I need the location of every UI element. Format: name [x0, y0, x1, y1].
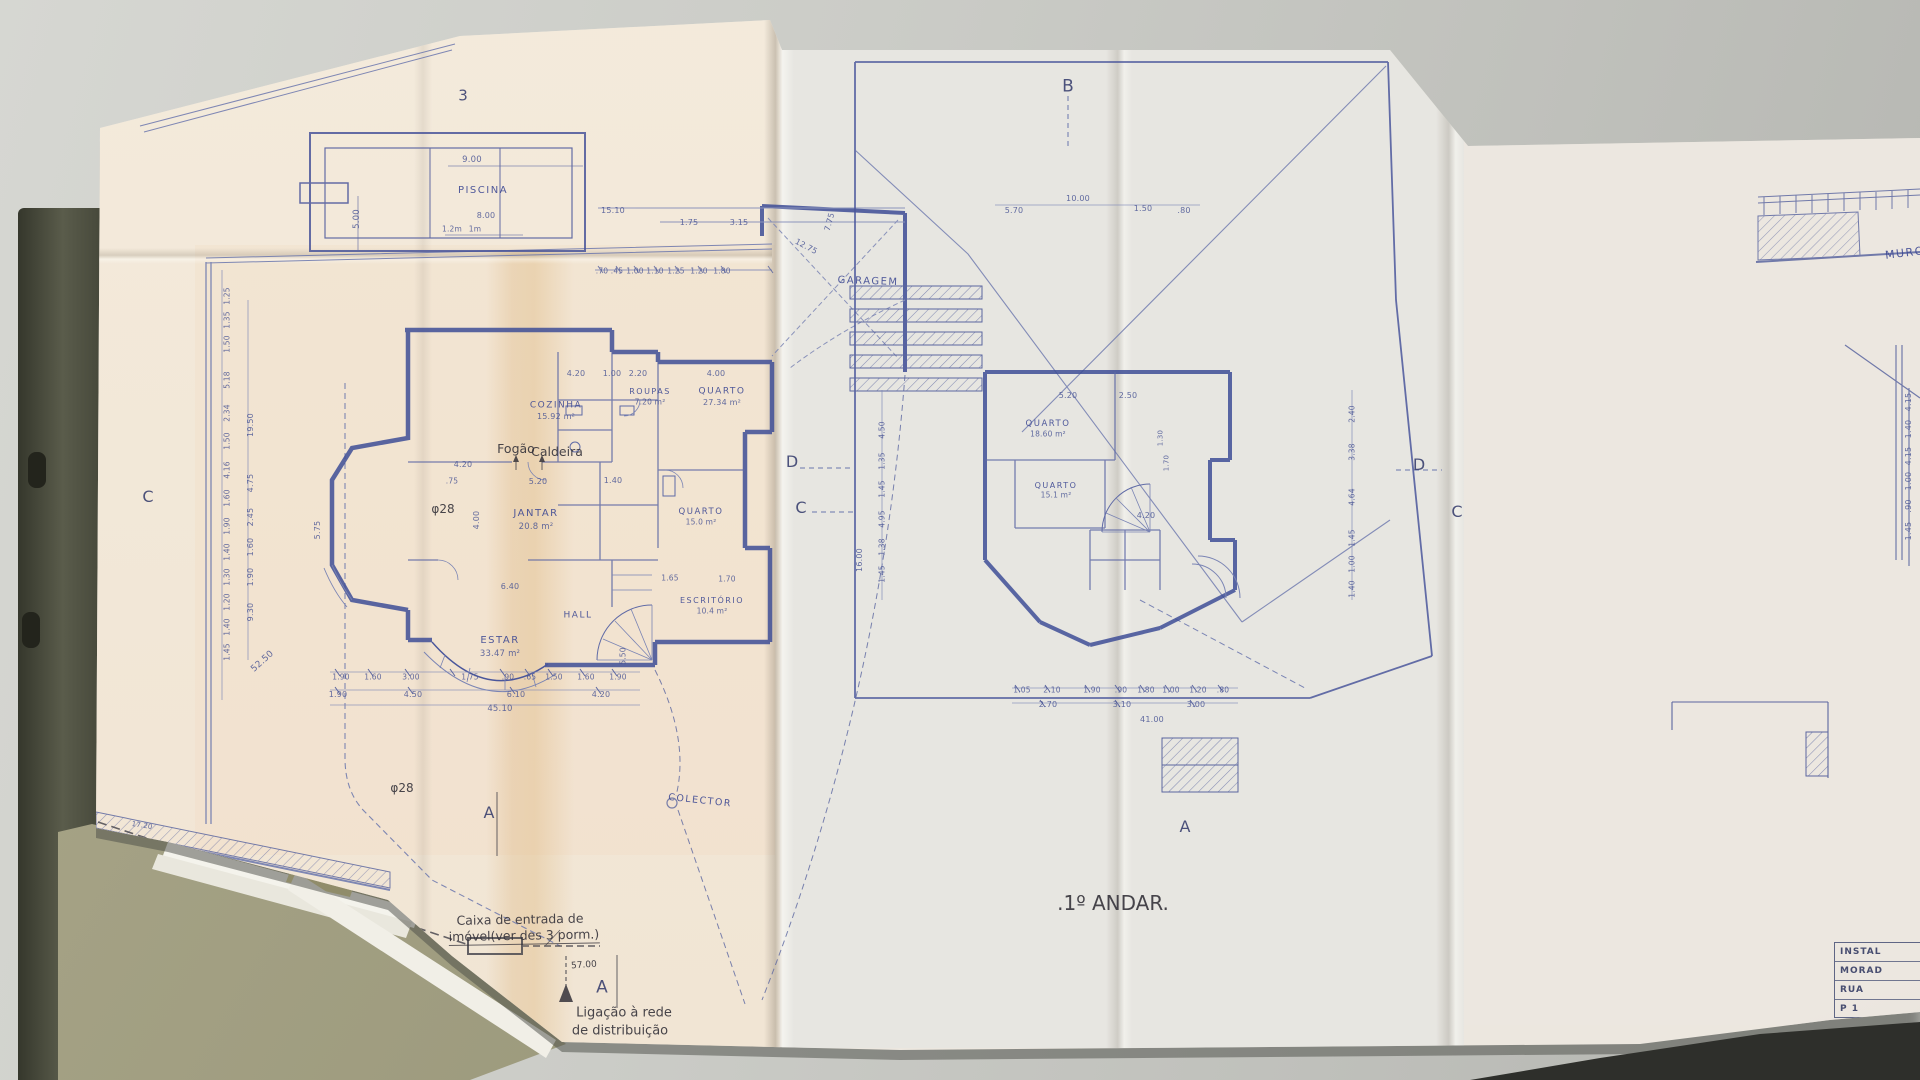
binder-ring — [28, 452, 46, 488]
site-boundary — [96, 44, 772, 946]
title-block-row: INSTAL — [1835, 943, 1920, 962]
title-block-row: RUA — [1835, 981, 1920, 1000]
title-block: INSTAL MORAD RUA P 1 — [1834, 942, 1920, 1018]
pool-piscina — [300, 133, 585, 251]
blueprint-photo: 3BCDCDCAAAPISCINAGARAGEMCOZINHA15.92 m²R… — [0, 0, 1920, 1080]
first-floor-plan — [800, 62, 1828, 792]
title-block-row: MORAD — [1835, 962, 1920, 981]
wall-elevation-muro — [1756, 189, 1920, 566]
binder-ring — [22, 612, 40, 648]
ground-floor-plan — [222, 270, 772, 705]
